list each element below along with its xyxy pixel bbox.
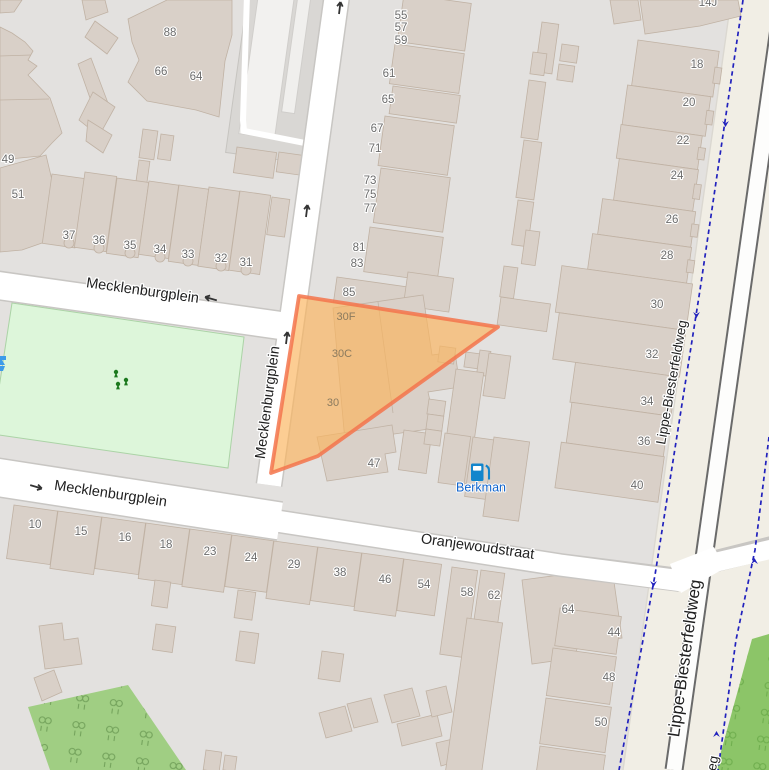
svg-text:eg: eg — [704, 755, 721, 770]
svg-text:36: 36 — [93, 235, 106, 247]
svg-text:38: 38 — [334, 567, 347, 579]
svg-text:51: 51 — [12, 189, 25, 201]
svg-text:54: 54 — [418, 579, 431, 591]
svg-text:55: 55 — [395, 10, 408, 22]
svg-text:71: 71 — [369, 143, 382, 155]
svg-text:30: 30 — [327, 397, 339, 409]
svg-text:47: 47 — [368, 458, 381, 470]
svg-text:24: 24 — [245, 552, 258, 564]
svg-text:20: 20 — [683, 97, 696, 109]
svg-text:62: 62 — [488, 590, 501, 602]
svg-text:64: 64 — [190, 71, 203, 83]
svg-text:64: 64 — [562, 604, 575, 616]
svg-text:36: 36 — [638, 436, 651, 448]
svg-text:73: 73 — [364, 175, 377, 187]
svg-text:57: 57 — [395, 22, 408, 34]
svg-text:29: 29 — [288, 559, 301, 571]
svg-text:30F: 30F — [337, 311, 356, 323]
svg-text:40: 40 — [631, 480, 644, 492]
svg-text:66: 66 — [155, 66, 168, 78]
svg-text:49: 49 — [2, 154, 15, 166]
svg-text:58: 58 — [461, 587, 474, 599]
svg-text:83: 83 — [351, 258, 364, 270]
svg-text:34: 34 — [641, 396, 654, 408]
svg-text:32: 32 — [215, 253, 228, 265]
svg-text:28: 28 — [661, 250, 674, 262]
svg-text:46: 46 — [379, 574, 392, 586]
svg-text:Berkman: Berkman — [456, 481, 506, 495]
svg-text:18: 18 — [691, 59, 704, 71]
svg-text:37: 37 — [63, 230, 76, 242]
svg-text:35: 35 — [124, 240, 137, 252]
svg-text:31: 31 — [240, 257, 253, 269]
svg-text:26: 26 — [666, 214, 679, 226]
svg-text:32: 32 — [646, 349, 659, 361]
svg-text:14J: 14J — [699, 0, 718, 9]
svg-text:44: 44 — [608, 627, 621, 639]
svg-text:48: 48 — [603, 672, 616, 684]
svg-text:77: 77 — [364, 203, 377, 215]
svg-text:85: 85 — [343, 287, 356, 299]
svg-text:81: 81 — [353, 242, 366, 254]
svg-text:24: 24 — [671, 170, 684, 182]
svg-text:34: 34 — [154, 244, 167, 256]
svg-text:10: 10 — [29, 519, 42, 531]
svg-text:16: 16 — [119, 532, 132, 544]
svg-text:67: 67 — [371, 123, 384, 135]
svg-text:22: 22 — [677, 135, 690, 147]
svg-text:23: 23 — [204, 546, 217, 558]
svg-text:33: 33 — [182, 249, 195, 261]
svg-text:59: 59 — [395, 35, 408, 47]
svg-text:18: 18 — [160, 539, 173, 551]
svg-text:50: 50 — [595, 717, 608, 729]
svg-text:30: 30 — [651, 299, 664, 311]
svg-text:30C: 30C — [332, 348, 352, 360]
svg-text:75: 75 — [364, 189, 377, 201]
svg-text:15: 15 — [75, 526, 88, 538]
svg-text:61: 61 — [383, 68, 396, 80]
svg-text:88: 88 — [164, 27, 177, 39]
svg-text:65: 65 — [382, 94, 395, 106]
